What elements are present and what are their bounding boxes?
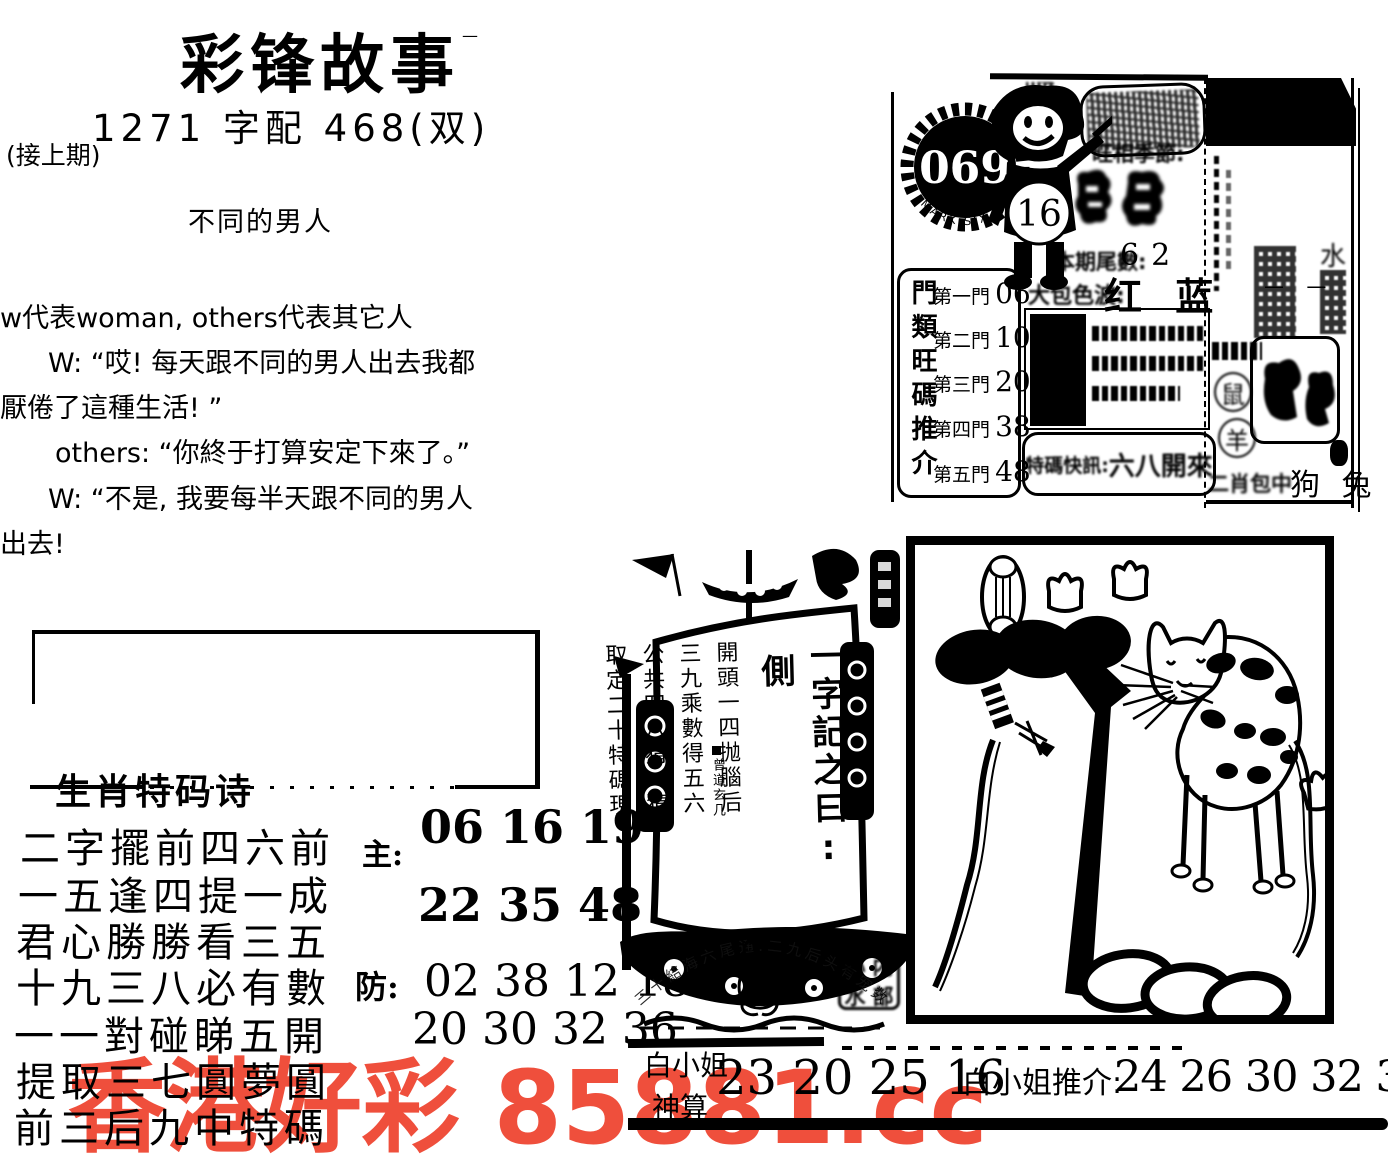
illegible-character-block (1320, 270, 1346, 334)
seal-char: 心 (845, 951, 866, 981)
episode-title: 不同的男人 (188, 200, 333, 239)
boy-number: 16 (1016, 194, 1062, 235)
outer-right-border (1358, 88, 1360, 512)
flash-label: 特碼快訊: (1025, 451, 1109, 478)
sail-motto-char: 側 (750, 653, 800, 688)
page-title: 彩锋故事 (180, 14, 460, 106)
site-watermark: 香港好彩 85881.cc (68, 1026, 988, 1173)
zodiac-label: 旺相季節: (1092, 138, 1184, 168)
gate-row: 第四門 38 (933, 410, 1031, 443)
gate-row: 第一門 06 (933, 277, 1031, 310)
inner-tip-seal: 心 内 水 部 (838, 948, 900, 1010)
signature-seal-square (712, 746, 721, 755)
side-panel-header (1206, 78, 1356, 146)
subtitle: 1271 字配 468(双) (92, 98, 490, 152)
scanned-lottery-sheet: 彩锋故事 — 1271 字配 468(双) (接上期) 不同的男人 w代表wom… (0, 0, 1388, 1173)
cobblestones (1080, 949, 1290, 1015)
illegible-vertical-marks (1214, 156, 1219, 291)
bottom-pair-animals: 狗 兔 (1290, 460, 1378, 504)
gate-row: 第五門 48 (933, 455, 1031, 488)
main-tip-label: 主: (362, 830, 403, 874)
gates-box: 門類旺碼推介 第一門 06 第二門 10 第三門 20 第四門 38 第五門 4… (897, 268, 1021, 498)
blurred-zodiac-characters (1072, 166, 1168, 236)
title-dash: — (462, 26, 478, 45)
seal-char: 部 (873, 981, 894, 1011)
whip-figure (935, 683, 1055, 991)
black-ink-block (1030, 314, 1086, 426)
blob-box (1250, 336, 1340, 444)
illegible-text-line (1092, 386, 1180, 401)
detail-box (1024, 308, 1210, 430)
cat-drawing (915, 545, 1325, 1015)
empty-box-left-border (32, 630, 35, 704)
circled-rat-character: 鼠 (1214, 372, 1252, 412)
gate-row: 第二門 10 (933, 321, 1031, 354)
gate-row: 第三門 20 (933, 365, 1031, 398)
goat-character: 羊 (1225, 421, 1249, 456)
gate-label: 第四門 (933, 419, 990, 441)
gate-label: 第二門 (933, 330, 990, 352)
illegible-text-line (1092, 356, 1204, 371)
story-line: 厭倦了這種生活! ” (0, 386, 222, 425)
story-line: W: “不是, 我要每半天跟不同的男人 (48, 477, 473, 516)
story-line: others: “你終于打算安定下來了。” (55, 431, 470, 470)
recommend-numbers: 24 26 30 32 36 (1114, 1052, 1388, 1102)
sail-signature: 曾道玄几 (708, 758, 727, 838)
flash-value: 六八開來 (1109, 446, 1213, 483)
spotted-cat (1115, 621, 1314, 957)
story-intro: w代表woman, others代表其它人 (0, 296, 413, 335)
seal-char: 内 (873, 951, 894, 981)
sail-motto-head: 一字記之曰: (803, 638, 849, 873)
gate-value: 06 (995, 277, 1031, 310)
empty-box-right-border (535, 630, 540, 788)
cat-picture-box (906, 536, 1334, 1024)
side-panel: — — 水 鼠 羊 二肖包中 狗 兔 (1204, 78, 1354, 508)
gate-label: 第五門 (933, 464, 990, 486)
bottom-pair-label: 二肖包中 (1208, 468, 1292, 498)
gate-label: 第一門 (933, 286, 990, 308)
empty-box-bottom-right (455, 785, 540, 789)
water-character: 水 (1320, 236, 1346, 273)
guard-tip-label: 防: (355, 962, 399, 1008)
rat-character: 鼠 (1221, 375, 1245, 410)
side-panel-bottom-border (1206, 500, 1354, 504)
story-line: 出去! (0, 522, 65, 561)
poem-heading: 生肖特码诗 (55, 763, 255, 815)
flash-box: 特碼快訊: 六八開來 (1022, 432, 1216, 496)
empty-box-top-border (32, 630, 538, 634)
seal-char: 水 (845, 981, 866, 1011)
continued-note: (接上期) (6, 136, 101, 172)
gate-label: 第三門 (933, 374, 990, 396)
story-line: W: “哎! 每天跟不同的男人出去我都 (48, 341, 475, 380)
illegible-vertical-marks (1226, 170, 1231, 270)
illegible-text-line (1092, 326, 1204, 341)
illegible-seal-figures (1253, 339, 1340, 444)
